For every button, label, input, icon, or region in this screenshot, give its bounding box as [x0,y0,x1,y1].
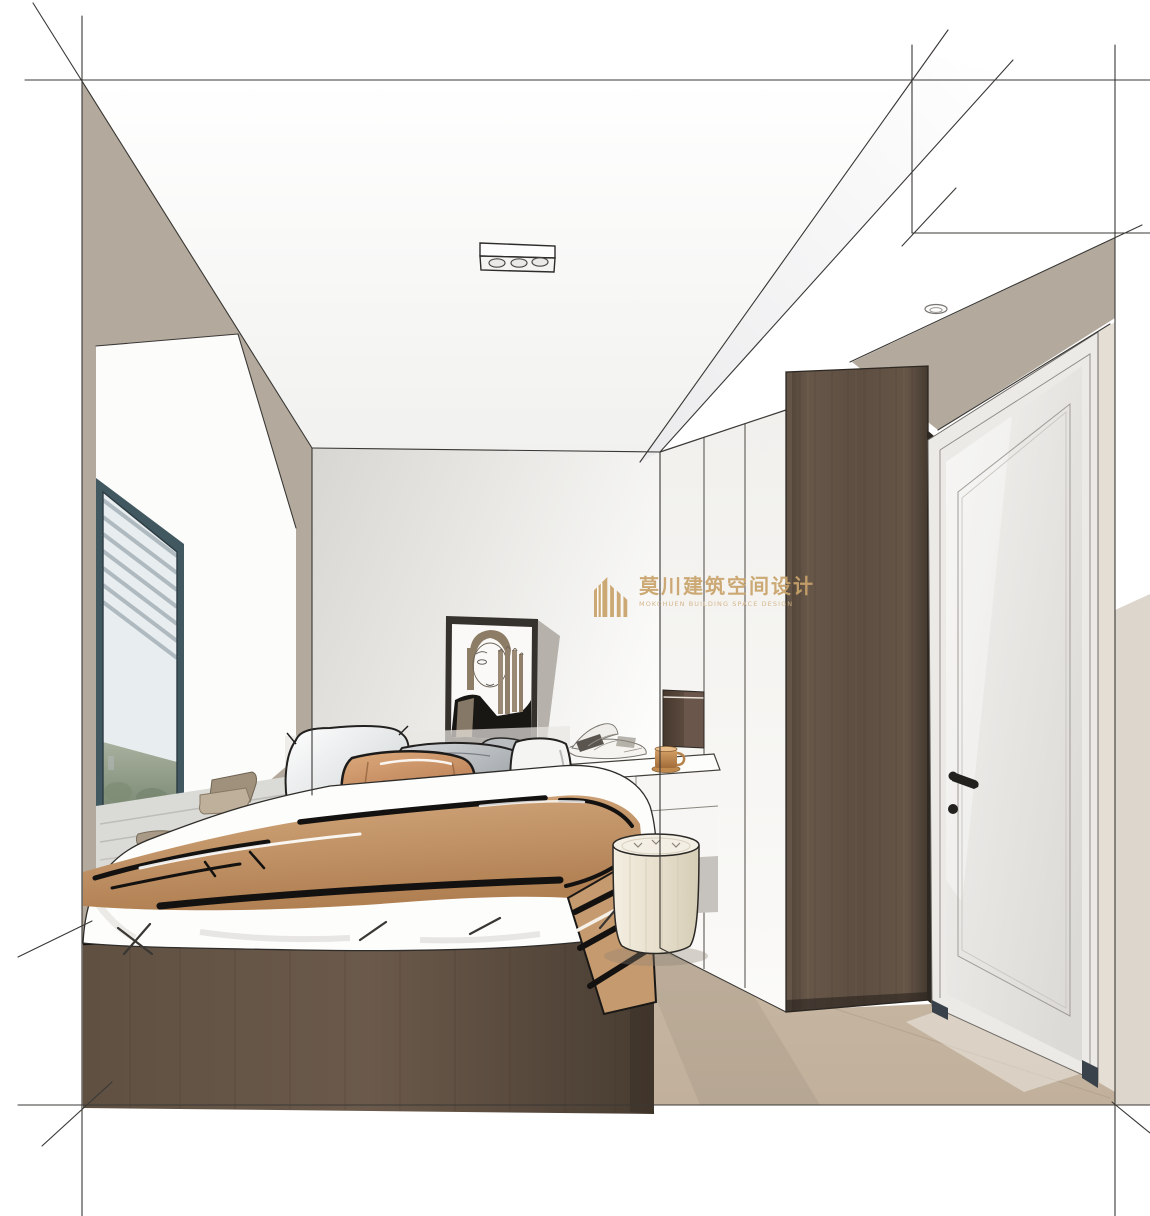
recessed-spotlight [925,305,947,314]
bed-platform [83,927,654,1114]
wardrobe-niche [663,690,704,748]
wardrobe [660,366,928,1012]
wardrobe-dark-cabinet [786,366,928,1012]
interior-rendering: 莫川建筑空间设计 MOKCHUEN BUILDING SPACE DESIGN [0,0,1150,1216]
bedroom-scene [0,0,1150,1216]
ceiling-track-light [480,243,555,272]
door [927,322,1150,1105]
